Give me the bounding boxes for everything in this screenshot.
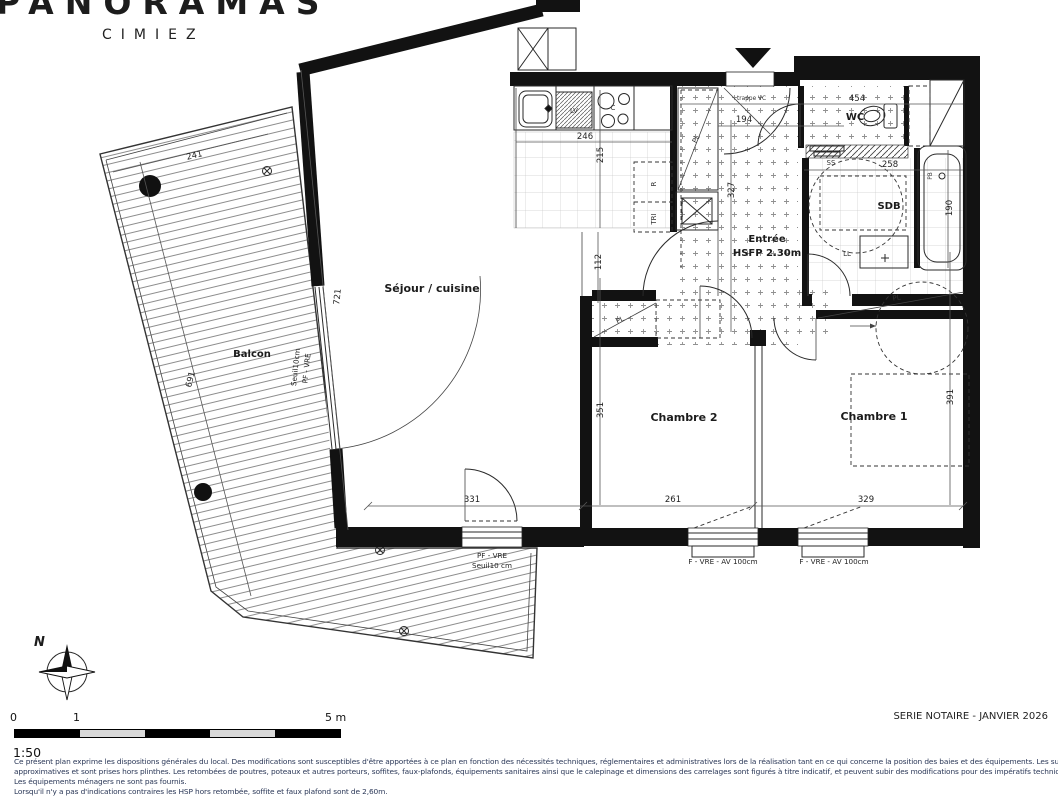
column-post (194, 483, 212, 501)
dim-391: 391 (946, 389, 956, 405)
chambre1-window-label: F - VRE - AV 100cm (799, 557, 868, 566)
north-compass-icon: N (34, 635, 95, 700)
label-fridge: R (650, 181, 658, 186)
dim-351: 351 (596, 402, 606, 418)
sejour-window-label-2: Seuil10 cm (472, 561, 512, 570)
floor-plan-page: PANORAMAS CIMIEZ (0, 0, 1062, 800)
kitchen-floor (514, 132, 672, 228)
label-bath: PB (928, 172, 934, 179)
north-label: N (34, 635, 45, 650)
label-trappe-vc: trappe VC (737, 96, 766, 102)
column-post (139, 175, 161, 197)
legal-line-2: approximatives et sont prises hors plint… (14, 767, 1058, 776)
dim-258: 258 (882, 160, 898, 170)
label-dishwasher: LV (570, 107, 578, 115)
dim-454: 454 (849, 94, 865, 104)
dim-261: 261 (665, 495, 681, 505)
dim-721: 721 (332, 288, 344, 305)
series-note: SERIE NOTAIRE - JANVIER 2026 (893, 711, 1048, 722)
floor-plan-drawing: 246 215 112 194 454 258 190 327 351 391 … (0, 0, 1062, 800)
dim-112: 112 (594, 254, 604, 270)
dim-194: 194 (736, 115, 752, 125)
room-label-wc: WC (846, 112, 864, 123)
label-tri: TRI (650, 213, 658, 225)
room-label-sdb: SDB (877, 201, 900, 212)
room-label-balcon: Balcon (233, 349, 271, 360)
label-closet-ch1: PL (892, 293, 901, 302)
scale-tick-0: 0 (10, 711, 17, 724)
dim-329: 329 (858, 495, 874, 505)
room-label-chambre1: Chambre 1 (840, 410, 907, 423)
scale-tick-1: 1 (73, 711, 80, 724)
dim-246: 246 (577, 132, 593, 142)
entree-height-note: HSFP 2.30m (733, 248, 801, 259)
dim-215: 215 (596, 147, 606, 163)
entrance-arrow-icon (735, 48, 771, 68)
chambre2-window-label: F - VRE - AV 100cm (688, 557, 757, 566)
room-label-entree: Entrée (748, 233, 785, 245)
room-label-sejour: Séjour / cuisine (384, 282, 479, 295)
sejour-window-label-1: PF - VRE (477, 551, 508, 560)
dim-331: 331 (464, 495, 480, 505)
label-towel-rail: SS (827, 159, 836, 167)
scale-tick-5m: 5 m (325, 711, 346, 724)
legal-line-3: Les équipements ménagers ne sont pas fou… (14, 777, 1058, 786)
label-cooktop: C (611, 104, 616, 112)
scale-bar (14, 729, 341, 738)
dim-327: 327 (727, 182, 737, 198)
dim-190: 190 (945, 200, 955, 216)
legal-line-4: Lorsqu'il n'y a pas d'indications contra… (14, 787, 1058, 796)
room-label-chambre2: Chambre 2 (650, 411, 717, 424)
legal-line-1: Ce présent plan exprime les dispositions… (14, 757, 1058, 766)
label-washer: LL (843, 250, 851, 258)
